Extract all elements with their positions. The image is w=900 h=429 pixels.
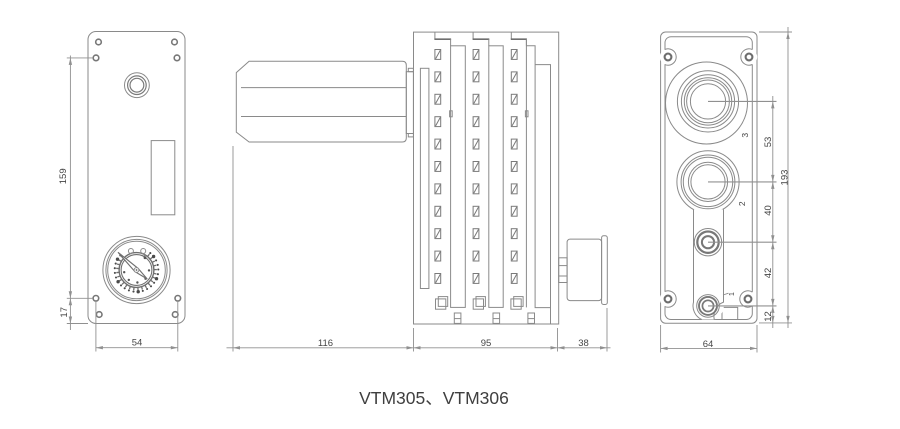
svg-text:40: 40 [763,205,774,216]
svg-text:VTM305、VTM306: VTM305、VTM306 [359,388,509,408]
svg-text:42: 42 [763,268,774,279]
svg-text:193: 193 [780,170,791,186]
svg-text:54: 54 [132,338,143,349]
svg-text:95: 95 [481,338,492,349]
svg-text:1: 1 [729,292,736,296]
svg-text:2: 2 [737,201,747,206]
svg-text:38: 38 [578,338,589,349]
svg-text:64: 64 [703,339,714,350]
svg-text:116: 116 [318,338,333,349]
svg-text:17: 17 [59,307,70,318]
svg-text:159: 159 [58,168,69,184]
svg-text:12: 12 [763,311,774,322]
svg-text:53: 53 [763,137,774,148]
svg-text:3: 3 [740,133,750,138]
